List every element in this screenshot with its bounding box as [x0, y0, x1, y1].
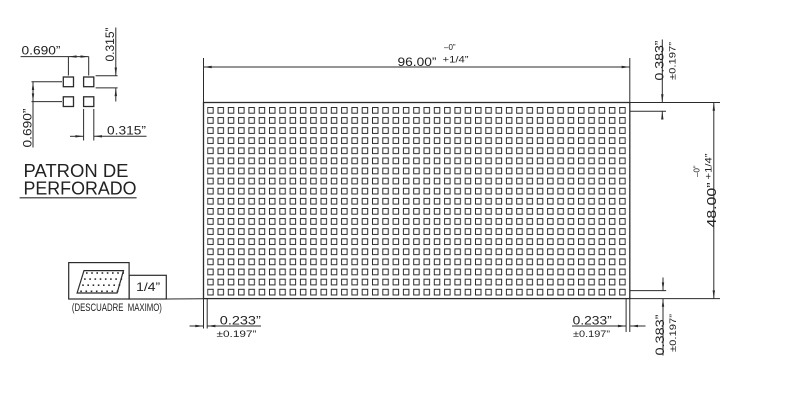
- svg-text:0.315”: 0.315”: [107, 124, 146, 138]
- svg-text:0.233”: 0.233”: [220, 314, 261, 328]
- svg-text:±0.197”: ±0.197”: [217, 329, 257, 340]
- svg-text:1/4”: 1/4”: [136, 280, 160, 294]
- svg-text:±0.197”: ±0.197”: [668, 314, 679, 352]
- svg-text:±0.197”: ±0.197”: [573, 329, 610, 340]
- svg-text:0.383”: 0.383”: [654, 40, 666, 80]
- svg-text:96.00”: 96.00”: [398, 55, 437, 69]
- svg-text:(DESCUADRE MAXIMO): (DESCUADRE MAXIMO): [72, 302, 162, 314]
- svg-text:0.233”: 0.233”: [573, 314, 612, 328]
- svg-text:0.315”: 0.315”: [105, 27, 117, 61]
- svg-text:48.00”: 48.00”: [704, 183, 719, 228]
- svg-text:–0”: –0”: [692, 165, 701, 177]
- svg-text:0.690”: 0.690”: [20, 109, 34, 148]
- svg-text:0.383”: 0.383”: [655, 314, 667, 355]
- svg-text:–0”: –0”: [444, 43, 456, 52]
- svg-text:+1/4”: +1/4”: [443, 55, 469, 65]
- svg-text:PERFORADO: PERFORADO: [24, 179, 137, 199]
- svg-text:±0.197”: ±0.197”: [668, 42, 679, 80]
- svg-text:+1/4”: +1/4”: [703, 153, 713, 179]
- svg-text:0.690”: 0.690”: [22, 44, 61, 58]
